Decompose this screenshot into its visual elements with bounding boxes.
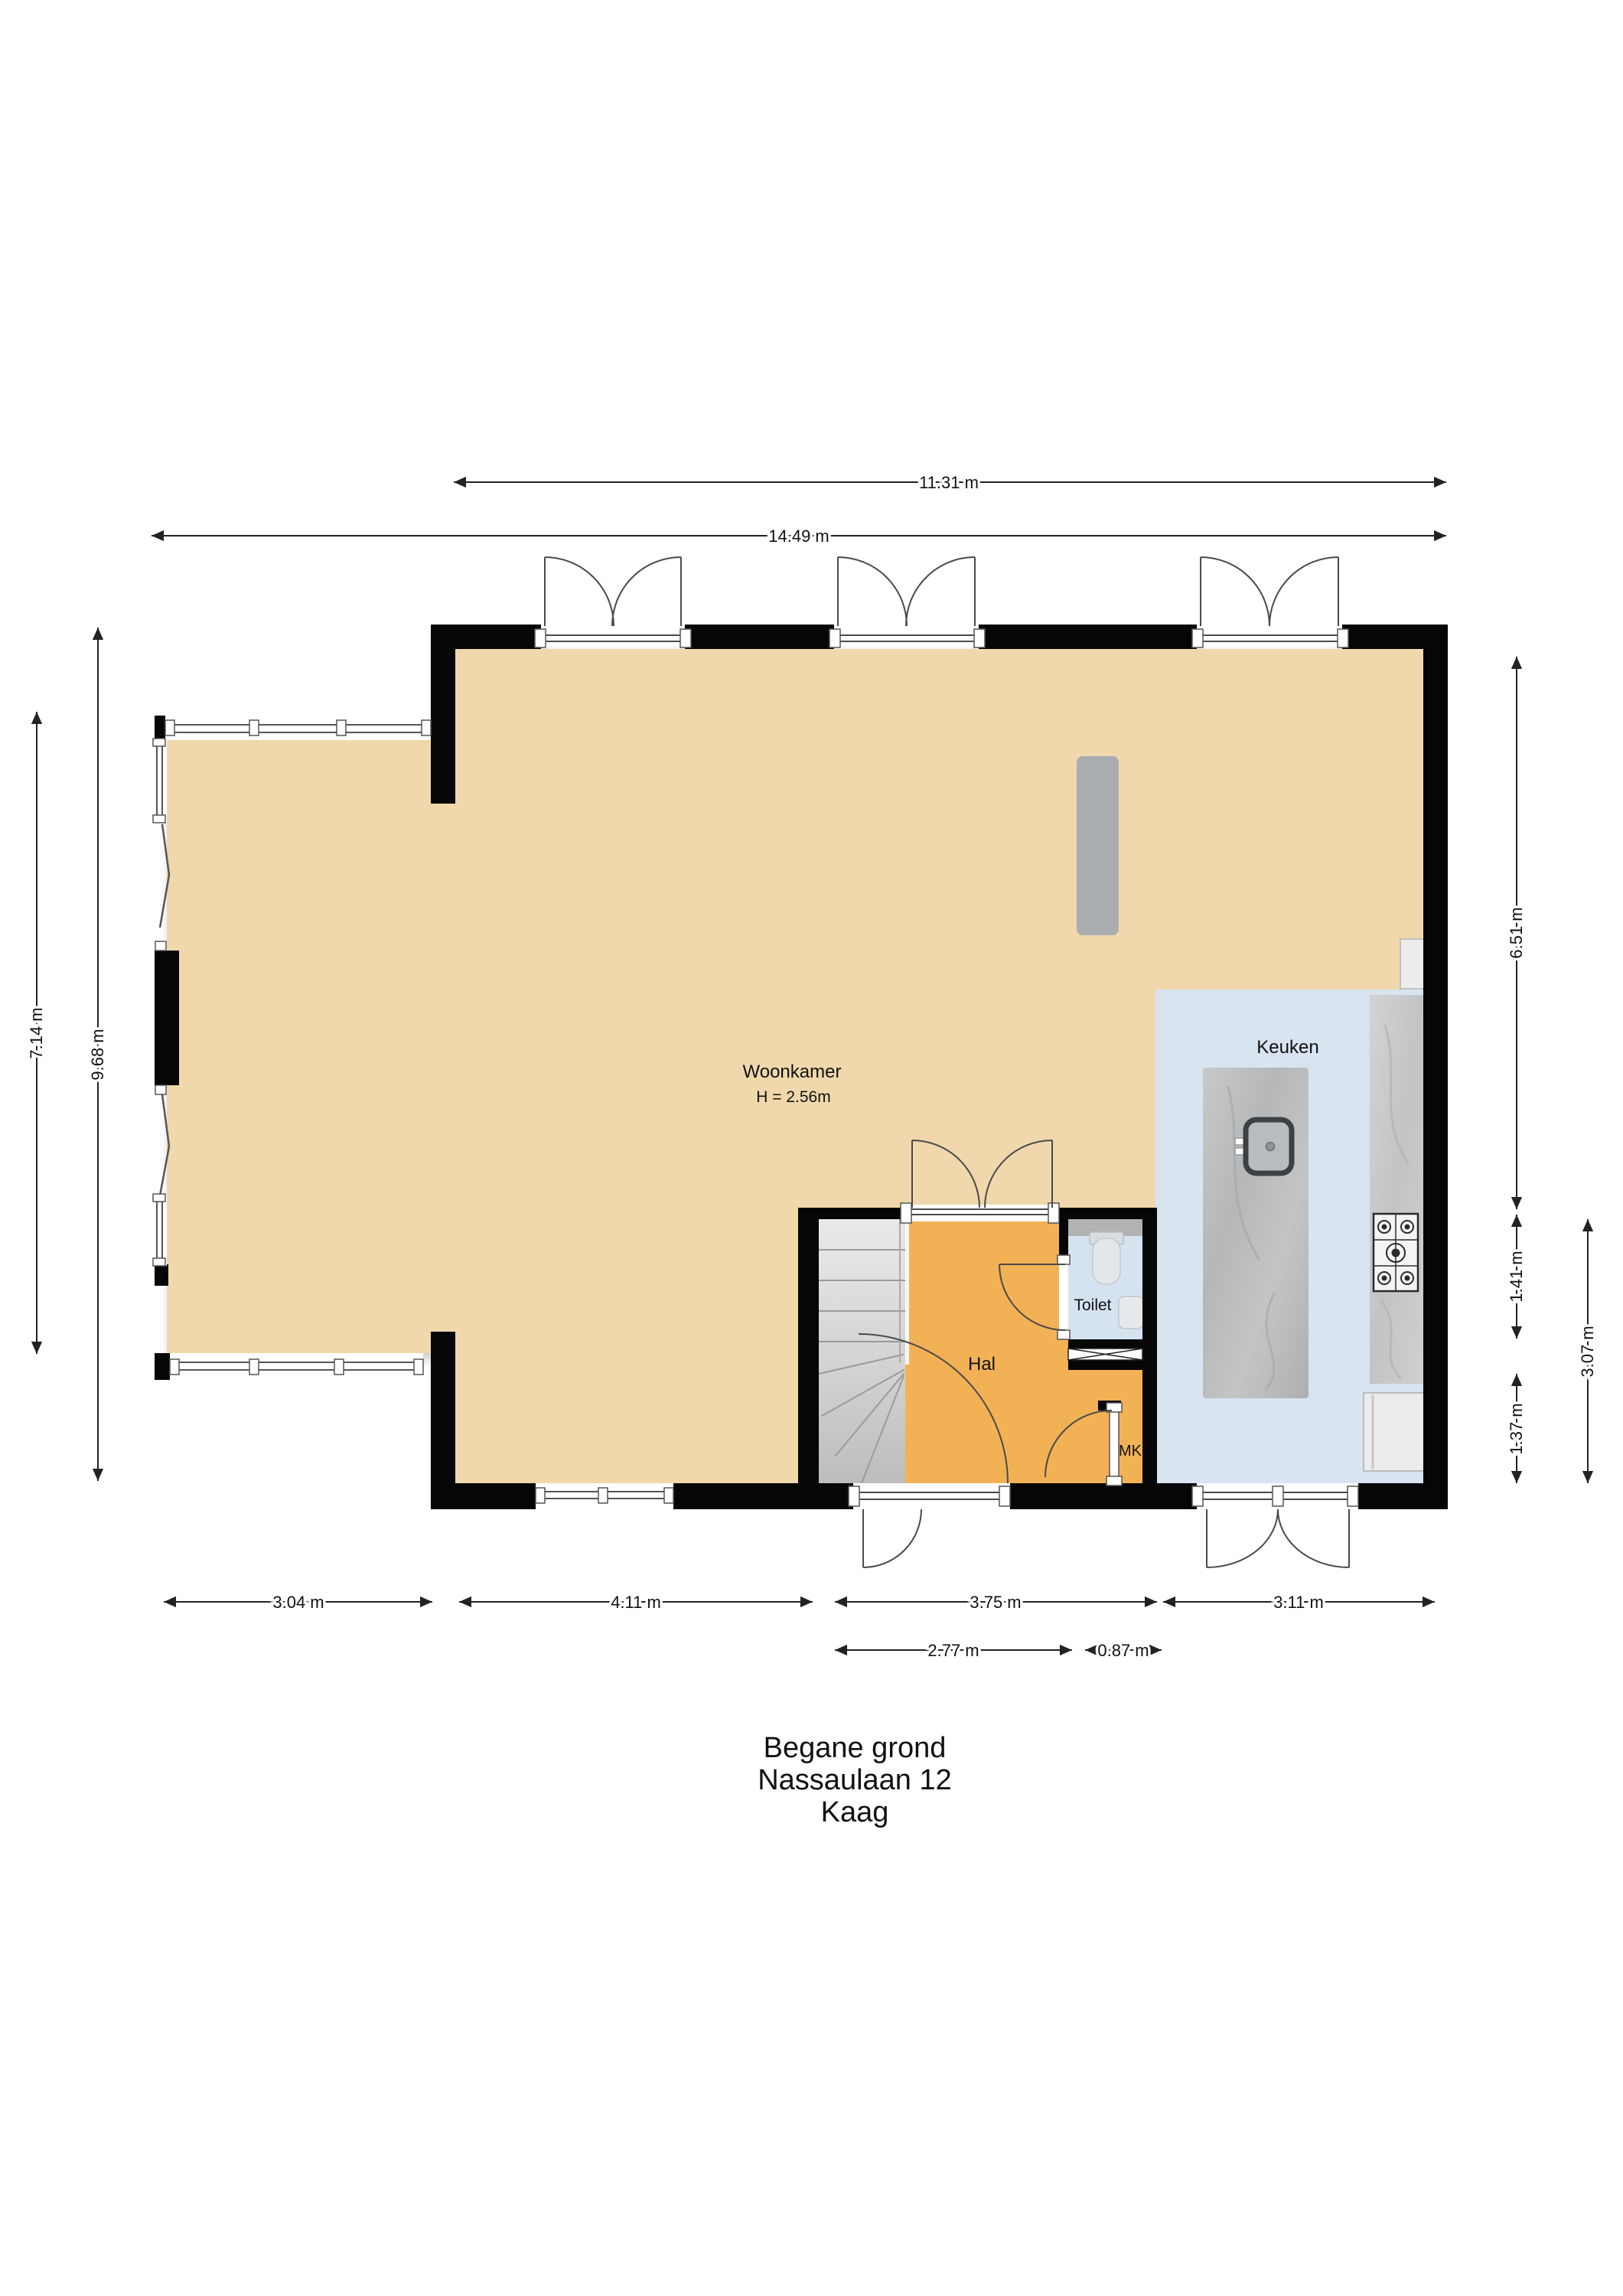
bay-top-window (165, 716, 431, 740)
dim-bottom-3: 3.75 m (970, 1593, 1021, 1612)
sink (1235, 1120, 1292, 1173)
dim-right-lower: 1.37 m (1507, 1403, 1526, 1454)
bottom-window (536, 1483, 673, 1509)
french-door-1 (535, 557, 691, 647)
dim-right-outer: 3.07 m (1578, 1326, 1597, 1377)
toilet-fixture (1090, 1232, 1123, 1284)
french-door-2 (829, 557, 985, 647)
bay-bottom-window (170, 1353, 423, 1380)
mk-label: MK (1119, 1443, 1142, 1459)
title-street: Nassaulaan 12 (758, 1764, 952, 1796)
floorplan-drawing: 11.31 m 14.49 m 7.14 m 9.68 m 6.51 m 1.4… (0, 0, 1623, 2296)
dim-top-outer: 14.49 m (768, 527, 829, 546)
dim-top-inner: 11.31 m (919, 473, 979, 492)
dim-bottom-1: 3.04 m (272, 1593, 324, 1612)
dim-left-outer: 9.68 m (88, 1029, 107, 1080)
dim-bottom-sub-1: 2.77 m (927, 1641, 979, 1660)
title-block: Begane grond Nassaulaan 12 Kaag (758, 1732, 952, 1828)
dim-bottom-2: 4.11 m (611, 1593, 661, 1612)
dim-right-mid: 1.41 m (1507, 1251, 1526, 1302)
west-window-lower (152, 1085, 169, 1266)
staircase (819, 1219, 909, 1483)
dim-left-inner: 7.14 m (27, 1007, 46, 1058)
kitchen-counter (1370, 995, 1423, 1384)
title-city: Kaag (821, 1796, 889, 1828)
washbasin (1119, 1296, 1143, 1329)
kitchen-double-door (1192, 1483, 1358, 1567)
living-room-label: Woonkamer (743, 1062, 842, 1082)
floorplan-page: 11.31 m 14.49 m 7.14 m 9.68 m 6.51 m 1.4… (0, 0, 1623, 2296)
hall-label: Hal (968, 1354, 996, 1375)
dim-right-upper: 6.51 m (1507, 907, 1526, 958)
french-door-3 (1192, 557, 1348, 647)
gas-hob (1374, 1214, 1418, 1291)
appliance (1400, 939, 1426, 989)
title-floor: Begane grond (764, 1732, 947, 1764)
toilet-label: Toilet (1074, 1296, 1111, 1314)
dim-bottom-4: 3.11 m (1273, 1593, 1324, 1612)
vent-grille (1068, 1349, 1142, 1360)
kitchen-label: Keuken (1256, 1037, 1318, 1058)
west-window-upper (152, 739, 169, 951)
column (1077, 756, 1119, 935)
living-room-height-note: H = 2.56m (756, 1088, 830, 1106)
bay-extension-floor (167, 735, 455, 1353)
dim-bottom-sub-2: 0.87 m (1097, 1641, 1149, 1660)
